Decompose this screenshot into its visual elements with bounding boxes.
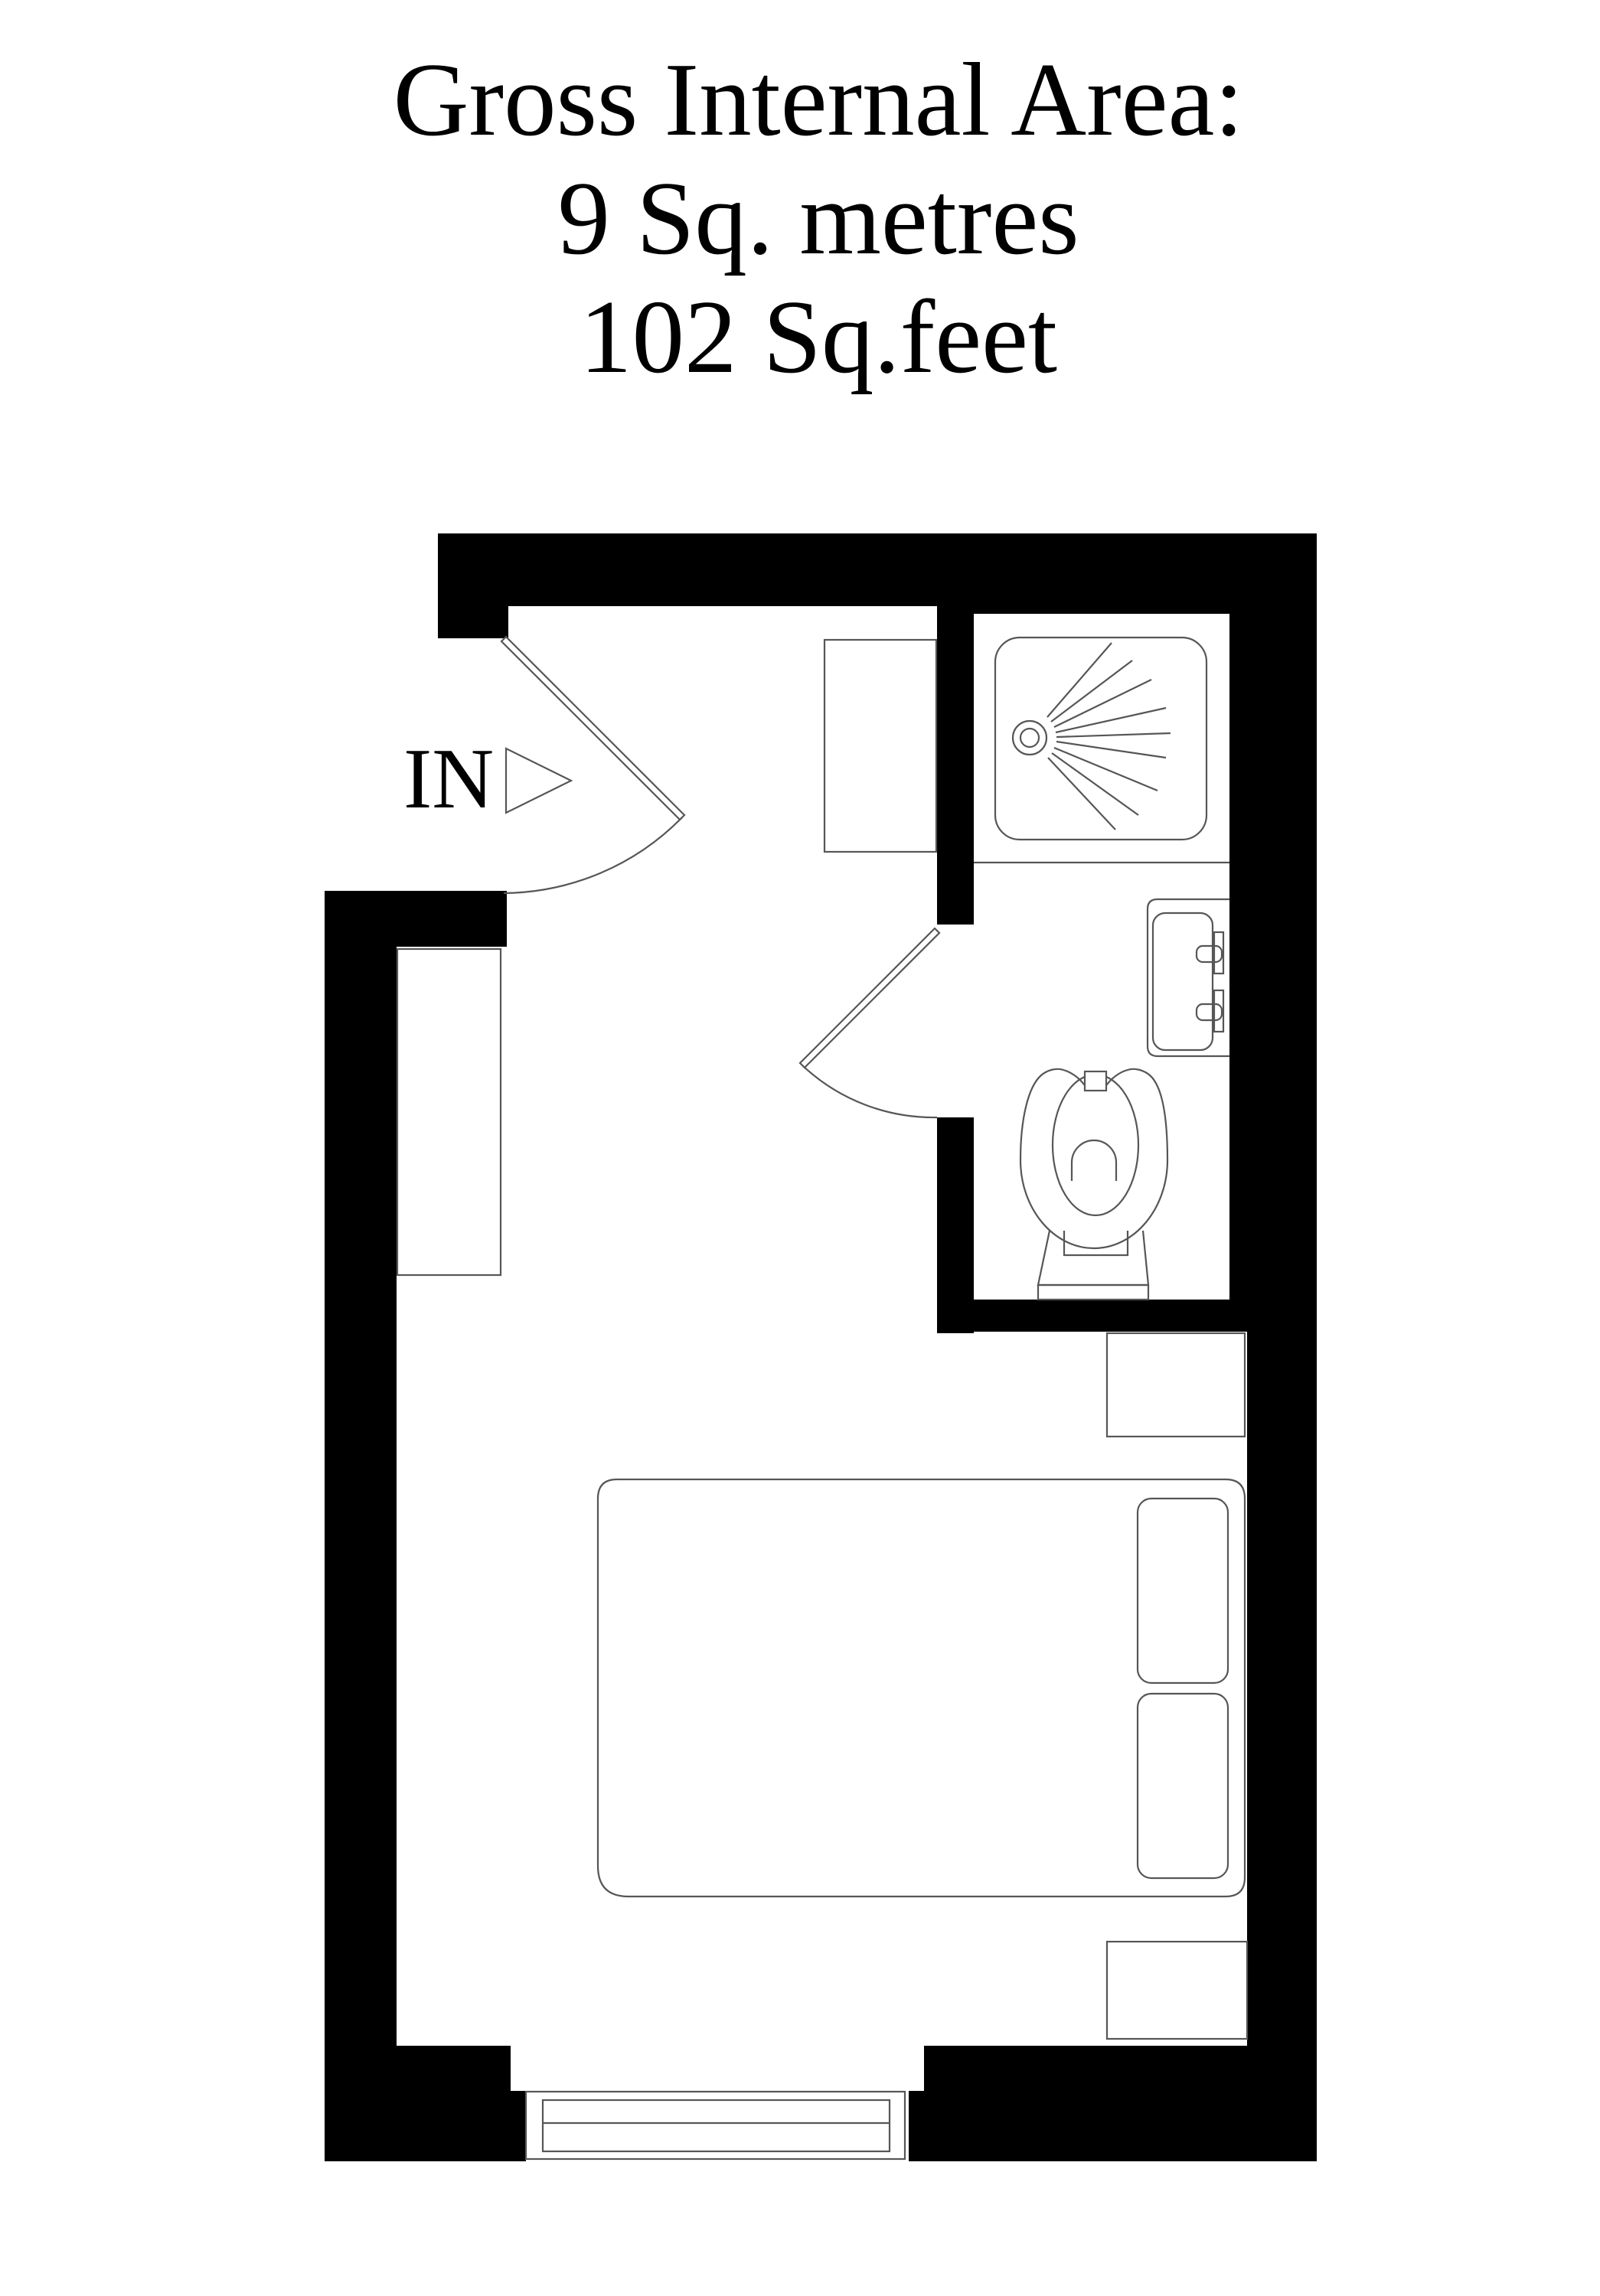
svg-text:Gross Internal Area:: Gross Internal Area: (393, 41, 1244, 158)
svg-text:102 Sq.feet: 102 Sq.feet (580, 279, 1057, 395)
svg-text:9 Sq. metres: 9 Sq. metres (557, 160, 1079, 276)
svg-text:IN: IN (403, 732, 494, 827)
